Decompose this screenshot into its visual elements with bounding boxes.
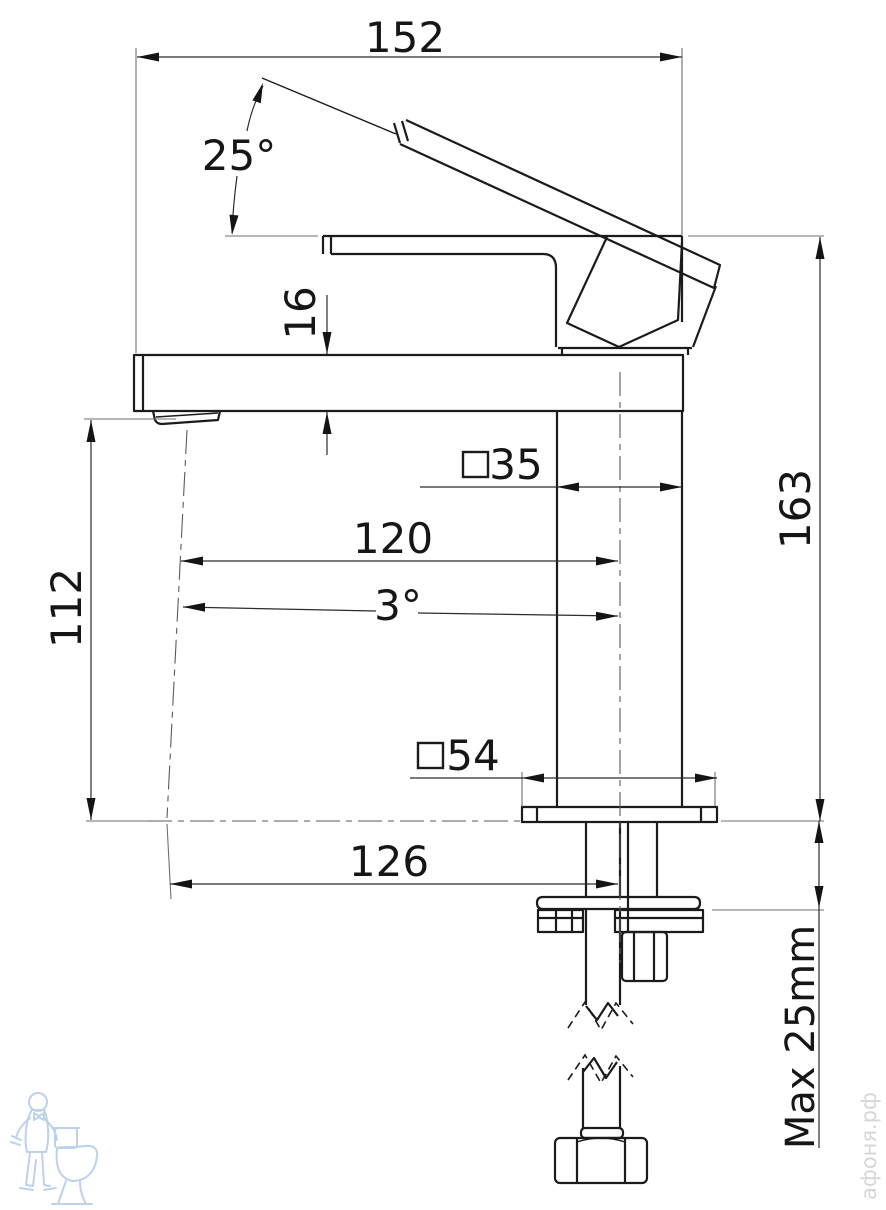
dimension-max25: Max 25mm — [712, 821, 824, 1149]
dimension-3deg: 3° — [183, 581, 618, 630]
nut-body — [555, 1138, 647, 1183]
arrowhead-3deg-left — [183, 603, 205, 612]
handle-bar — [400, 120, 720, 288]
ext-lines-152 — [136, 48, 682, 353]
arrowhead-54-left — [522, 774, 544, 783]
arrowhead-54-right — [695, 774, 717, 783]
plumber-bowtie-icon — [34, 1113, 44, 1120]
horseshoe-washer — [537, 897, 700, 909]
lower-stud-edges — [583, 1066, 620, 1128]
arrowhead-152-left — [137, 53, 159, 62]
dimension-163: 163 — [688, 236, 825, 821]
arrowhead-3deg-right — [596, 612, 618, 621]
ext-line-126 — [167, 824, 171, 899]
dim-label-35: 35 — [489, 440, 542, 489]
deck-slab — [134, 355, 683, 411]
watermark-site-text: афоня.рф — [857, 1092, 881, 1200]
dim-label-126: 126 — [349, 837, 429, 886]
aerator-screen-line — [156, 413, 218, 417]
nut-washer — [581, 1128, 623, 1138]
toilet-base-icon — [52, 1181, 92, 1204]
plumber-head-icon — [29, 1093, 47, 1111]
arrowhead-163-top — [816, 237, 825, 259]
ext-lines-54 — [522, 772, 715, 806]
arrowhead-25deg-top — [252, 83, 263, 103]
head-outer-right-edge — [693, 286, 716, 347]
dimension-16: 16 — [276, 286, 332, 455]
plumber-legs-icon — [20, 1152, 56, 1190]
nut-facets — [577, 1138, 625, 1183]
hose-hex-facets — [634, 932, 654, 981]
arrowhead-152-right — [660, 53, 682, 62]
technical-drawing: 152 25° 16 35 120 3° 112 — [0, 0, 886, 1210]
dimension-112: 112 — [42, 419, 176, 820]
mounting-nut-right — [615, 910, 703, 932]
dim-label-152: 152 — [365, 13, 445, 62]
dimension-35: 35 — [420, 440, 682, 492]
arrowhead-120-right — [596, 557, 618, 566]
arrowhead-25deg-bottom — [230, 215, 239, 235]
dimension-126: 126 — [167, 824, 618, 899]
dim-label-112: 112 — [42, 568, 91, 648]
aerator — [153, 411, 220, 424]
dim-label-max25: Max 25mm — [778, 925, 824, 1149]
arrowhead-max25-bottom — [815, 886, 824, 908]
cartridge-dome — [567, 237, 682, 347]
hex-nut-bottom — [555, 1128, 647, 1183]
dimension-54: 54 — [410, 731, 717, 806]
outlet-axis-line — [167, 430, 187, 818]
arrowhead-163-bottom — [816, 799, 825, 821]
square-section-symbol-54 — [418, 743, 443, 768]
arrowhead-35-right — [660, 483, 682, 492]
arrowhead-max25-top — [815, 821, 824, 843]
arrowhead-112-bottom — [87, 798, 96, 820]
mounting-stud — [568, 1002, 633, 1128]
handle-notch — [394, 121, 408, 143]
dim-label-163: 163 — [771, 469, 820, 549]
spout-deck — [134, 355, 683, 411]
drawing-page: 152 25° 16 35 120 3° 112 — [0, 0, 886, 1210]
handle-lever — [262, 78, 720, 288]
dim-label-25deg: 25° — [202, 131, 276, 180]
arrowhead-126-right — [596, 880, 618, 889]
dim-label-120: 120 — [353, 514, 433, 563]
dimension-152: 152 — [136, 13, 682, 353]
dim-label-54: 54 — [446, 731, 499, 780]
watermark-logo — [11, 1093, 97, 1204]
dimension-120: 120 — [181, 514, 618, 566]
hose-hex — [622, 932, 667, 981]
arm-left-cap — [323, 236, 331, 254]
arrowhead-16-bottom — [323, 412, 332, 434]
arrowhead-126-left — [170, 880, 192, 889]
dim-label-3deg: 3° — [374, 581, 422, 630]
toilet-bowl-icon — [57, 1146, 98, 1181]
arrowhead-120-left — [181, 557, 203, 566]
handle-tip-extension-line — [262, 78, 396, 134]
rod-break-bottom-jag — [583, 1058, 617, 1078]
plate-chamfers — [537, 807, 701, 822]
arrowhead-112-top — [87, 420, 96, 442]
toilet-tank-icon — [55, 1128, 77, 1148]
arm-bottom-edge — [331, 254, 556, 347]
square-section-symbol-35 — [463, 452, 488, 477]
spout-arm — [323, 236, 682, 347]
faucet-outline — [134, 78, 720, 1183]
dimension-25deg: 25° — [202, 83, 318, 236]
arrowhead-35-left — [557, 483, 579, 492]
mounting-nut-left — [538, 910, 583, 932]
dim-label-16: 16 — [276, 286, 325, 339]
